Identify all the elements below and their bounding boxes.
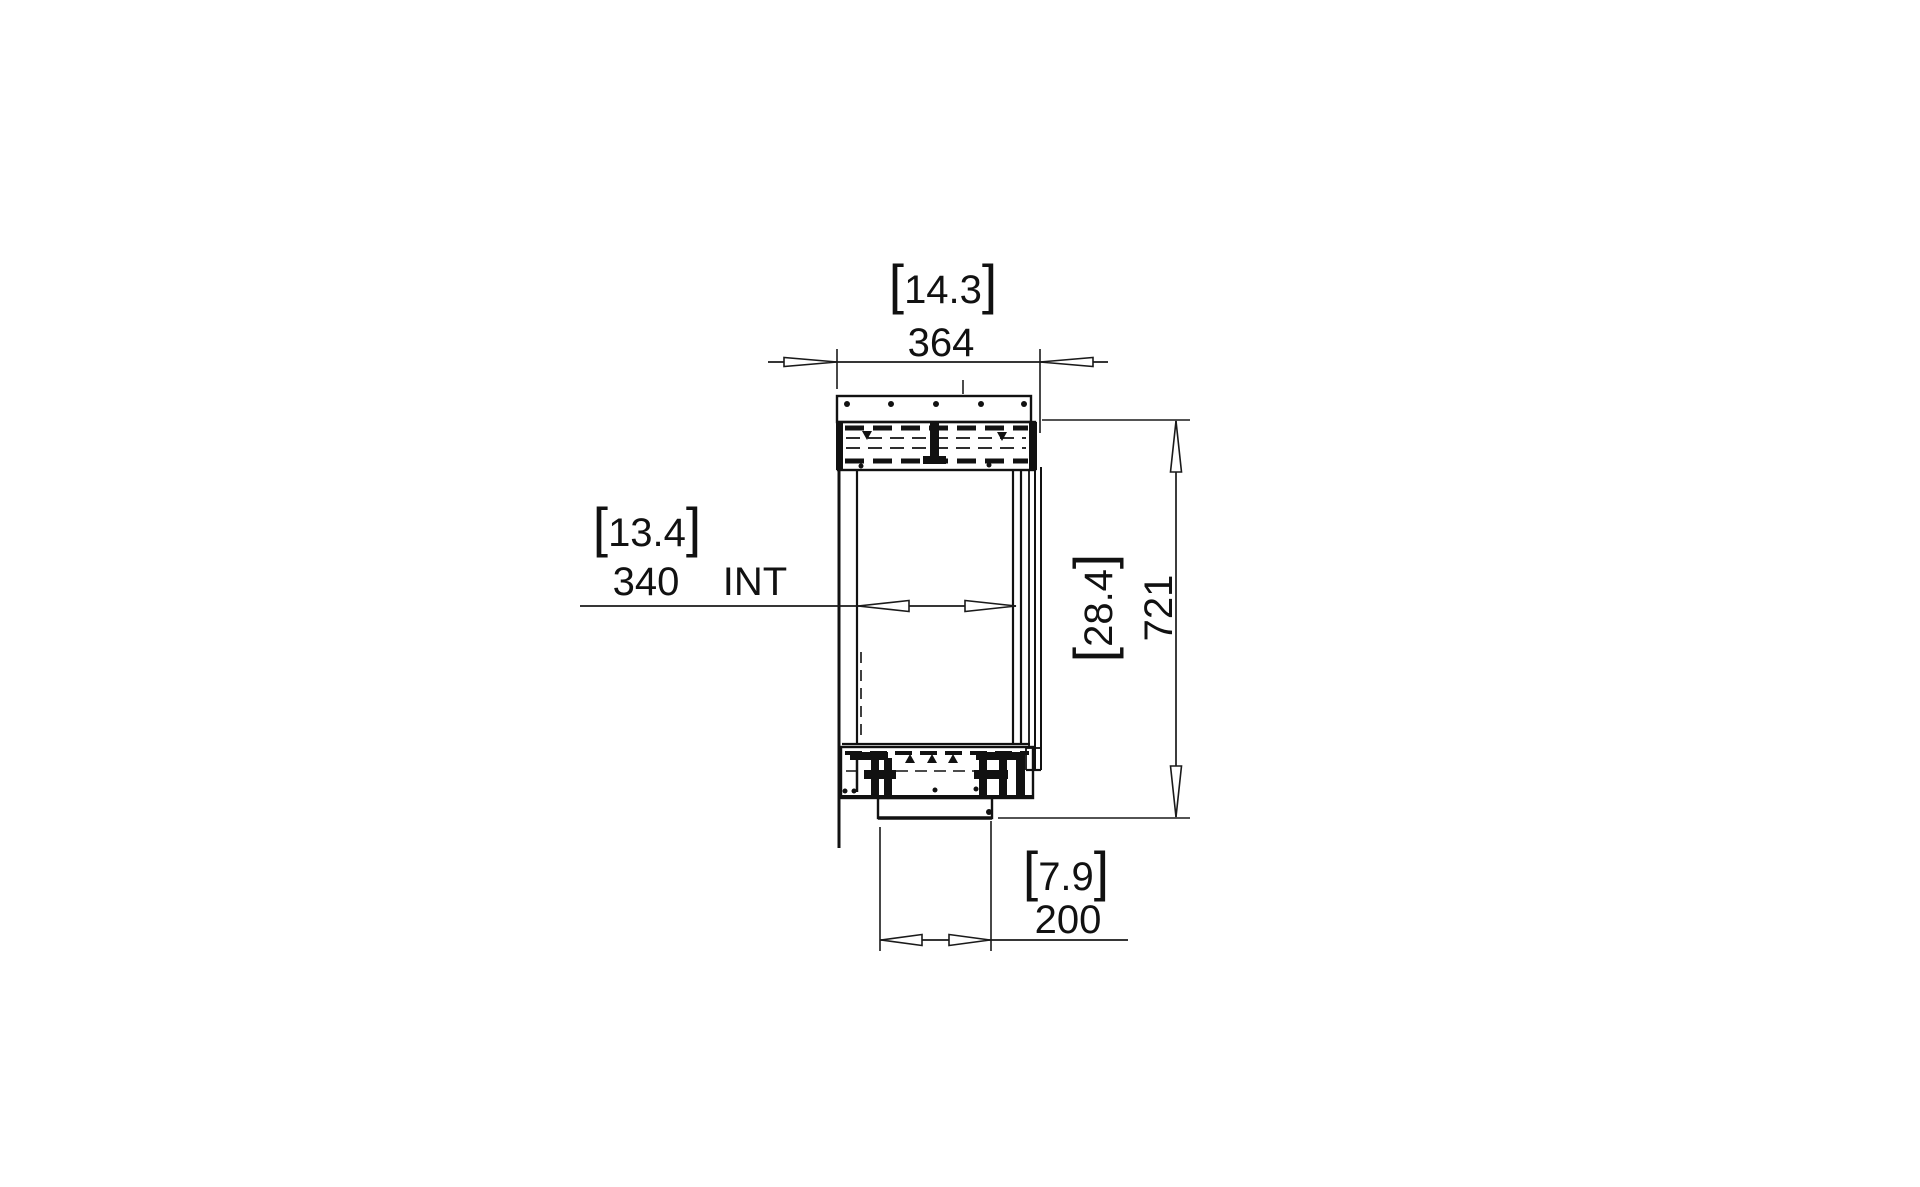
section-drawing: [14.3] 364 [13.4] 340 INT [28.4] 721 [7.… (0, 0, 1920, 1187)
dim-internal-mm: 340 (613, 560, 680, 604)
left-mount-bracket (850, 752, 896, 796)
arrowhead-down-icon (1171, 766, 1182, 817)
dim-base-mm: 200 (1035, 898, 1102, 942)
fastener-dot (859, 464, 864, 469)
base-protrusion (878, 798, 992, 818)
arrowhead-right-icon (965, 601, 1016, 612)
bottom-assembly (841, 747, 1033, 798)
fastener-dot (986, 809, 992, 815)
arrowhead-left-icon (858, 601, 909, 612)
dim-internal-label: INT (723, 560, 787, 604)
fastener-dot (933, 401, 939, 407)
dim-height-mm: 721 (1137, 575, 1181, 642)
arrowhead-left-icon (1040, 358, 1093, 367)
arrowhead-up-icon (1171, 421, 1182, 472)
dim-top-inches: [14.3] (889, 253, 997, 315)
base-protrusion-outline (878, 798, 992, 818)
fastener-dot (978, 401, 984, 407)
dim-internal-inches: [13.4] (593, 496, 701, 558)
burner-left-flange (836, 422, 843, 470)
weld-mark (997, 432, 1007, 441)
burner-center-base (923, 456, 946, 464)
top-mounting-plate (837, 380, 1031, 422)
fastener-dot (844, 401, 850, 407)
fastener-dot (933, 788, 938, 793)
dim-base-inches: [7.9] (1023, 840, 1109, 902)
fastener-dot (888, 401, 894, 407)
burner-center-post (930, 423, 939, 457)
right-mount-bracket (974, 752, 1025, 796)
burner-right-flange (1029, 422, 1037, 470)
arrowhead-right-icon (949, 935, 990, 946)
weld-mark (927, 754, 937, 763)
fastener-dot (974, 787, 979, 792)
dimension-base-width: [7.9] 200 (880, 821, 1128, 951)
bracket-band (974, 770, 1008, 779)
dim-height-inches: [28.4] (1062, 554, 1124, 662)
burner-tray (836, 422, 1037, 470)
firebox-section (836, 380, 1041, 848)
right-wall (1013, 467, 1041, 770)
arrowhead-right-icon (784, 358, 837, 367)
bracket-bar (850, 752, 888, 760)
bracket-band (864, 770, 896, 779)
weld-mark (905, 754, 915, 763)
dim-top-mm: 364 (908, 321, 975, 365)
fastener-dot (843, 789, 848, 794)
dimension-internal-width: [13.4] 340 INT (580, 496, 1016, 612)
fastener-dot (987, 463, 992, 468)
drawing-sheet: [14.3] 364 [13.4] 340 INT [28.4] 721 [7.… (0, 0, 1920, 1187)
end-bracket (1016, 752, 1025, 795)
weld-mark (948, 754, 958, 763)
arrowhead-left-icon (881, 935, 922, 946)
fastener-dot (852, 789, 857, 794)
fastener-dot (1021, 401, 1027, 407)
top-plate-outline (837, 396, 1031, 422)
